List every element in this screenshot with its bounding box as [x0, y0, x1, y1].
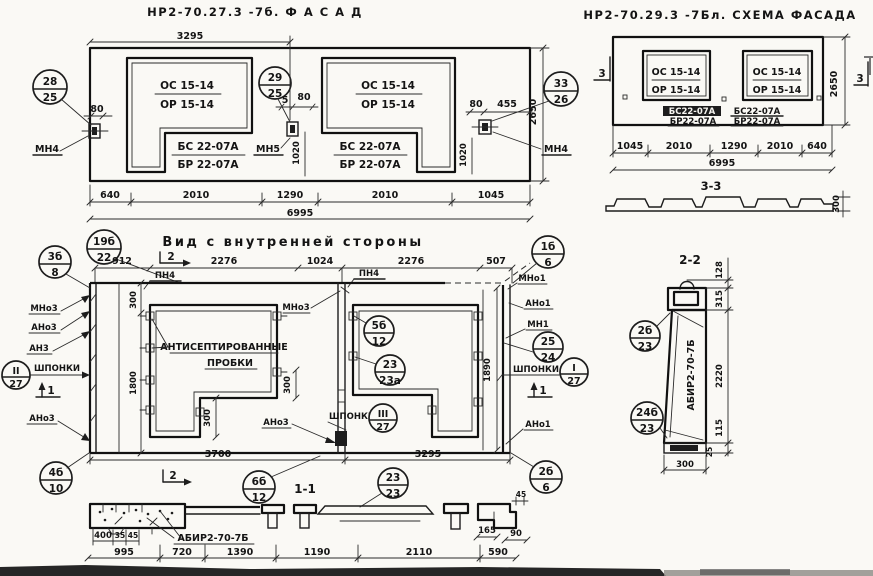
anchor-label-mn5: МН5	[256, 144, 280, 155]
svg-text:1020: 1020	[459, 143, 469, 167]
svg-text:720: 720	[172, 547, 192, 558]
ano3-label-left-bottom: АНо3	[29, 414, 55, 424]
plugs-note-line1: АНТИСЕПТИРОВАННЫЕ	[160, 342, 287, 353]
svg-text:3: 3	[856, 73, 863, 85]
svg-text:2650: 2650	[528, 98, 539, 125]
scan-artifacts	[0, 57, 873, 576]
svg-text:19б: 19б	[93, 236, 115, 248]
scheme-sill1-frame-mark: БР22-07А	[670, 117, 717, 127]
svg-text:23: 23	[383, 359, 398, 371]
scheme-dot-2	[722, 97, 726, 101]
shponki-label-left: ШПОНКИ	[34, 364, 80, 374]
svg-text:2276: 2276	[398, 256, 425, 267]
callout-III-27: III 27	[369, 404, 397, 433]
svg-text:6995: 6995	[709, 158, 735, 169]
ano1-label-top: АНо1	[525, 299, 551, 309]
svg-text:12: 12	[252, 492, 267, 504]
bottom-smudge	[0, 565, 666, 576]
svg-text:23: 23	[638, 341, 653, 353]
shponki-label-right: ШПОНКИ	[513, 365, 559, 375]
section-2-2-view: 2-2 АБИР2-70-7Б 2б 23 24б 23	[630, 253, 733, 474]
svg-text:III: III	[378, 409, 389, 420]
mno3-joint-label: МНо3	[282, 303, 309, 313]
svg-text:2110: 2110	[406, 547, 433, 558]
rib-section-1	[262, 505, 284, 513]
mno1-label: МНо1	[518, 274, 545, 284]
svg-text:640: 640	[100, 190, 120, 201]
svg-text:455: 455	[497, 99, 517, 110]
callout-I-27: I 27	[560, 358, 588, 387]
pn4-label-1: ПН4	[155, 271, 175, 281]
svg-text:5: 5	[282, 95, 289, 106]
scheme-sill1-block-mark: БС22-07А	[669, 107, 716, 117]
ano3-mid-label: АНо3	[263, 418, 289, 428]
svg-text:22: 22	[97, 252, 112, 264]
svg-text:995: 995	[114, 547, 134, 558]
section-mark-3-right: 3	[854, 62, 868, 86]
svg-text:25: 25	[43, 92, 58, 104]
anchor-embed-mid	[287, 122, 298, 136]
svg-text:165: 165	[478, 526, 496, 536]
svg-text:590: 590	[488, 547, 508, 558]
svg-text:1290: 1290	[277, 190, 304, 201]
svg-text:1024: 1024	[307, 256, 334, 267]
svg-text:115: 115	[715, 419, 725, 437]
svg-text:80: 80	[297, 92, 311, 103]
bottom-smudge-mid	[700, 569, 790, 575]
facade-elevation-drawing: НР2-70.27.3 -7б. Ф А С А Д ОС 15-14 ОР 1…	[33, 5, 578, 222]
internal-title: Вид с внутренней стороны	[162, 235, 423, 250]
internal-left-labels: 3б 8 МНо3 АНо3 АН3 II 27 ШПОНКИ	[2, 246, 90, 495]
callout-2b-23: 2б 23	[630, 313, 670, 353]
window2-block-mark: ОС 15-14	[361, 80, 415, 92]
svg-text:1290: 1290	[721, 141, 748, 152]
svg-text:27: 27	[9, 379, 22, 390]
sill1-block-mark: БС 22-07А	[177, 141, 239, 153]
scheme-dot-3	[817, 96, 821, 100]
svg-text:507: 507	[486, 256, 506, 267]
svg-text:1190: 1190	[304, 547, 331, 558]
svg-text:10: 10	[49, 483, 64, 495]
svg-text:2010: 2010	[767, 141, 794, 152]
panel-section-body	[664, 310, 706, 443]
end-rib-section	[478, 504, 516, 528]
svg-text:1045: 1045	[478, 190, 504, 201]
svg-text:2: 2	[169, 470, 176, 482]
svg-text:912: 912	[112, 256, 132, 267]
svg-text:45: 45	[516, 490, 526, 499]
internal-window-1	[150, 305, 277, 437]
scheme-window1-frame-mark: ОР 15-14	[652, 85, 701, 96]
section-2-2-dimensions: 128 315 2220 115 25 300	[661, 258, 733, 474]
section-1-1-title: 1-1	[294, 482, 316, 496]
callout-5b-12: 5б 12	[354, 316, 394, 348]
panel-mark-vertical: АБИР2-70-7Б	[686, 339, 697, 410]
svg-text:2650: 2650	[829, 70, 840, 97]
scheme-window1-block-mark: ОС 15-14	[652, 67, 701, 78]
svg-text:27: 27	[376, 422, 389, 433]
svg-text:1045: 1045	[617, 141, 643, 152]
section-cut-mark-1-right: 1	[528, 382, 552, 397]
svg-text:35: 35	[115, 531, 125, 540]
svg-text:II: II	[12, 366, 19, 377]
scheme-dimensions: 2650 1045 2010 1290 2010 640 6995	[610, 34, 850, 173]
svg-text:80: 80	[469, 99, 483, 110]
svg-text:29: 29	[268, 72, 283, 84]
svg-text:4б: 4б	[49, 467, 64, 479]
svg-text:640: 640	[807, 141, 827, 152]
svg-text:33: 33	[554, 78, 569, 90]
sill1-frame-mark: БР 22-07А	[177, 159, 239, 171]
anchor-embed-right	[472, 120, 498, 134]
scheme-title: НР2-70.29.3 -7Бл. СХЕМА ФАСАДА	[583, 8, 856, 22]
sill2-frame-mark: БР 22-07А	[339, 159, 401, 171]
svg-text:128: 128	[715, 261, 725, 279]
svg-text:I: I	[572, 363, 576, 374]
scheme-window2-block-mark: ОС 15-14	[753, 67, 802, 78]
svg-text:1: 1	[539, 385, 546, 397]
svg-text:2276: 2276	[211, 256, 238, 267]
window1-frame-mark: ОР 15-14	[160, 99, 214, 111]
anchor-label-mn4-right: МН4	[544, 144, 568, 155]
mn1-label: МН1	[527, 320, 549, 330]
section-cut-mark-2-top: 2	[160, 251, 191, 267]
section-3-3-profile	[606, 197, 833, 211]
section-3-3-title: 3-3	[701, 179, 722, 193]
callout-24b-23: 24б 23	[631, 402, 667, 438]
mno3-label-left: МНо3	[30, 304, 57, 314]
svg-text:2010: 2010	[666, 141, 693, 152]
sill2-block-mark: БС 22-07А	[339, 141, 401, 153]
scheme-window2-frame-mark: ОР 15-14	[753, 85, 802, 96]
callout-28-25: 28 25	[33, 70, 91, 125]
section-1-1-view: АБИР2-70-7Б 400 35 45 165 90 45	[85, 490, 530, 562]
svg-text:300: 300	[676, 460, 694, 470]
ano3-label-left-top: АНо3	[31, 323, 57, 333]
anchor-embed-left	[82, 124, 108, 138]
svg-text:2010: 2010	[372, 190, 399, 201]
svg-text:80: 80	[90, 104, 104, 115]
internal-bottom-dimensions: 3700 3295	[87, 449, 513, 464]
svg-text:300: 300	[203, 409, 213, 427]
svg-text:2б: 2б	[638, 325, 653, 337]
svg-text:300: 300	[129, 291, 139, 309]
svg-text:12: 12	[372, 336, 387, 348]
svg-text:1390: 1390	[227, 547, 254, 558]
svg-text:1020: 1020	[292, 141, 302, 165]
svg-text:3б: 3б	[48, 251, 63, 263]
svg-text:3700: 3700	[205, 449, 232, 460]
shponki-label-mid: ШПОНКИ	[329, 412, 375, 422]
svg-text:6б: 6б	[252, 476, 267, 488]
anchor-label-mn4-left: МН4	[35, 144, 59, 155]
section-3-3-view: 3-3 300	[606, 179, 850, 217]
svg-text:1800: 1800	[129, 371, 139, 395]
svg-text:2010: 2010	[183, 190, 210, 201]
svg-text:1б: 1б	[541, 241, 556, 253]
svg-text:8: 8	[51, 267, 58, 279]
window2-frame-mark: ОР 15-14	[361, 99, 415, 111]
svg-text:1: 1	[47, 385, 54, 397]
svg-text:28: 28	[43, 76, 58, 88]
svg-text:24: 24	[541, 352, 556, 364]
svg-text:45: 45	[128, 531, 138, 540]
svg-text:26: 26	[554, 94, 569, 106]
svg-text:3295: 3295	[177, 31, 203, 42]
svg-text:400: 400	[94, 531, 112, 541]
svg-text:25: 25	[541, 336, 556, 348]
callout-2b-6: 2б 6	[511, 453, 562, 494]
callout-4b-10: 4б 10	[40, 453, 89, 495]
window1-block-mark: ОС 15-14	[160, 80, 214, 92]
rib-section-3	[444, 504, 468, 513]
plate-section	[318, 506, 433, 514]
panel-mark-bottom: АБИР2-70-7Б	[177, 533, 248, 544]
section-1-1-dimensions: 400 35 45 165 90 45 995 720 1390 1190 21	[85, 490, 530, 562]
an3-label-left: АН3	[29, 344, 49, 354]
svg-text:315: 315	[715, 290, 725, 308]
scheme-sill2-frame-mark: БР22-07А	[734, 117, 781, 127]
svg-text:25: 25	[268, 88, 283, 100]
svg-text:2220: 2220	[715, 364, 725, 388]
svg-text:23: 23	[386, 488, 401, 500]
section-cut-mark-1-left: 1	[36, 382, 60, 397]
panel-joint	[335, 283, 349, 453]
svg-text:6: 6	[542, 482, 549, 494]
antiseptic-plugs	[140, 312, 482, 416]
callout-II-27: II 27	[2, 361, 30, 390]
section-cut-mark-2-bottom: 2	[163, 470, 192, 486]
svg-text:90: 90	[510, 529, 522, 539]
callout-23-23: 23 23	[360, 468, 408, 507]
section-mark-3-left: 3	[594, 57, 610, 81]
svg-text:2б: 2б	[539, 466, 554, 478]
svg-text:3295: 3295	[415, 449, 441, 460]
drawing-canvas: НР2-70.27.3 -7б. Ф А С А Д ОС 15-14 ОР 1…	[0, 0, 873, 576]
svg-text:24б: 24б	[636, 407, 658, 419]
svg-text:23а: 23а	[379, 375, 401, 387]
callout-25-24: 25 24	[504, 332, 563, 364]
facade-scheme-drawing: НР2-70.29.3 -7Бл. СХЕМА ФАСАДА ОС 15-14 …	[583, 8, 868, 217]
callout-6b-12: 6б 12	[243, 456, 320, 504]
svg-text:23: 23	[640, 423, 655, 435]
section-2-2-title: 2-2	[679, 253, 701, 267]
svg-text:300: 300	[283, 376, 293, 394]
svg-text:23: 23	[386, 472, 401, 484]
svg-text:6: 6	[544, 257, 551, 269]
svg-text:300: 300	[832, 195, 842, 213]
svg-text:5б: 5б	[372, 320, 387, 332]
callout-23-23a: 23 23а	[355, 355, 405, 387]
svg-text:27: 27	[567, 376, 580, 387]
internal-view-drawing: Вид с внутренней стороны 19б 22 912 2276…	[2, 230, 588, 507]
rib-section-2	[294, 505, 316, 513]
svg-text:2: 2	[167, 251, 174, 263]
facade-title: НР2-70.27.3 -7б. Ф А С А Д	[147, 5, 363, 19]
scheme-dot-1	[623, 95, 627, 99]
callout-3b-8: 3б 8	[39, 246, 90, 288]
plugs-note-line2: ПРОБКИ	[207, 358, 253, 369]
svg-text:1890: 1890	[483, 358, 493, 382]
svg-text:6995: 6995	[287, 208, 313, 219]
blueprint-scan: НР2-70.27.3 -7б. Ф А С А Д ОС 15-14 ОР 1…	[0, 0, 873, 576]
pn4-label-2: ПН4	[359, 269, 379, 279]
svg-text:3: 3	[598, 68, 605, 80]
ano1-label-bottom: АНо1	[525, 420, 551, 430]
